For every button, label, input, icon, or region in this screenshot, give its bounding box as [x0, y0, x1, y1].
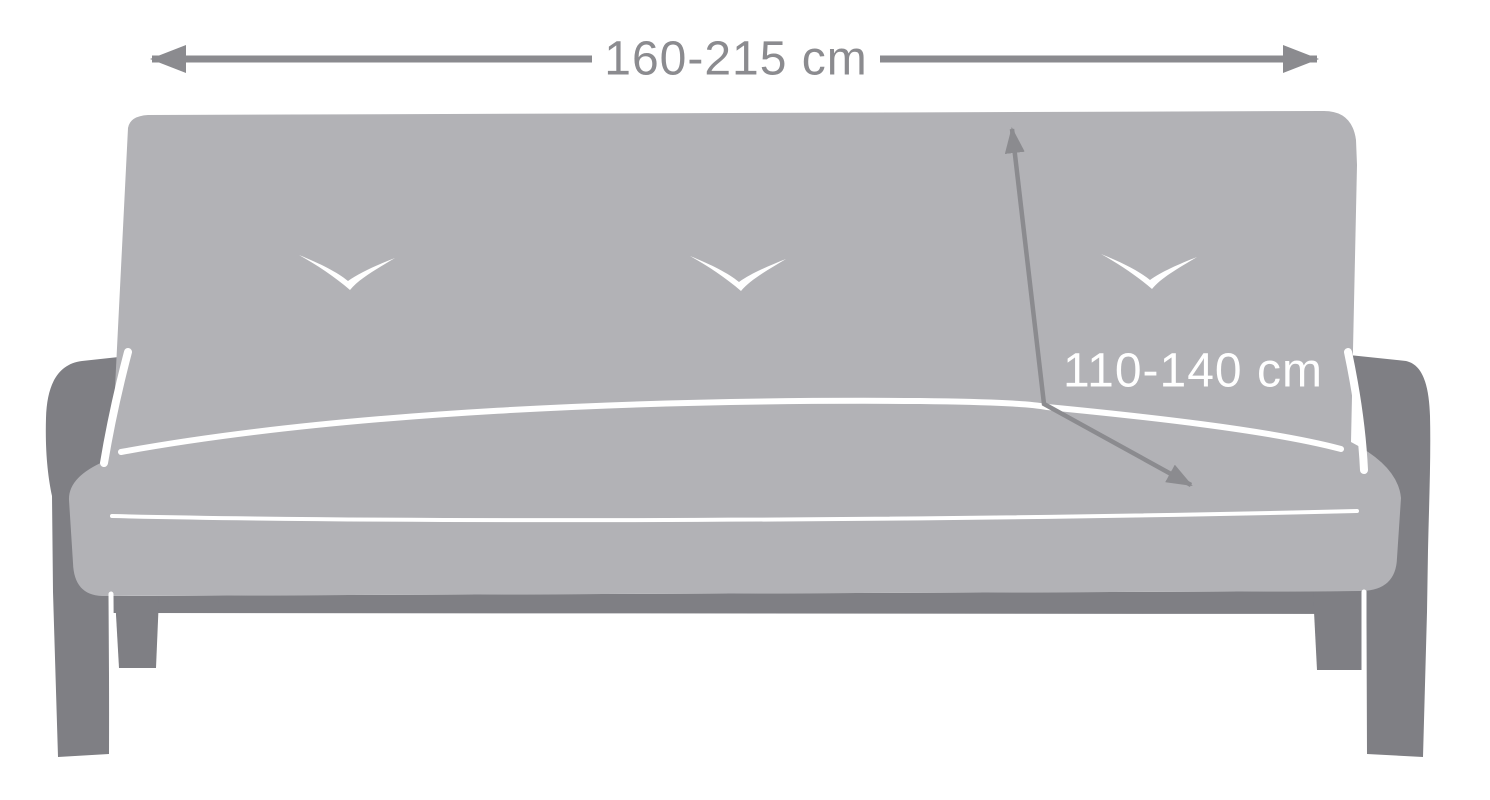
- depth-dimension-label: 110-140 cm: [1063, 345, 1323, 398]
- rear-right-leg: [1313, 591, 1362, 670]
- sofa-dimension-diagram: 160-215 cm 110-140 cm: [0, 0, 1490, 800]
- diagram-canvas: 160-215 cm 110-140 cm: [0, 0, 1490, 800]
- left-leg-gap-line: [111, 594, 112, 756]
- rear-left-leg: [115, 597, 159, 668]
- width-dimension-label: 160-215 cm: [604, 33, 867, 86]
